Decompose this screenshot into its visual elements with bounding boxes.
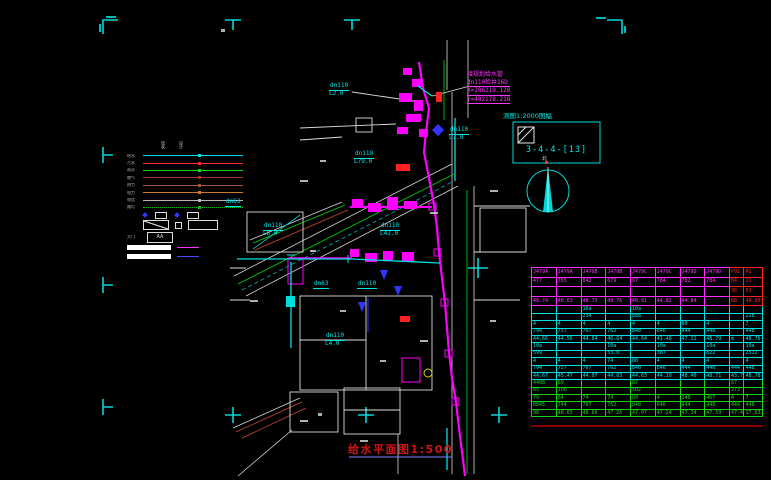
legend-line-sample [143,185,243,186]
pipe-length-text: L42.0 [380,231,400,238]
table-cell: 84 [556,395,581,402]
table-cell: 8845 [532,402,557,409]
table-cell: 444 [680,328,705,335]
table-cell: 273 [730,387,744,394]
table-cell: 7 [744,395,763,402]
legend-line-sample [143,177,243,178]
table-cell [655,387,680,394]
pipe-dim-label: dn110L7.0 [449,127,469,141]
table-cell: 46.64 [606,335,631,342]
pipe-length-text: L7.0 [449,135,469,142]
well-coordinate-callout: 接规划给水管 dn110检井16D X=286219.128 Y=482178.… [467,71,510,104]
table-cell [730,343,744,350]
north-label: 北 [542,155,547,162]
table-cell [556,306,581,313]
pipe-length-text: L4.0 [325,341,345,348]
pipe-dim-label: dn110L42.0 [380,223,400,237]
table-cell: 840 [631,328,656,335]
table-cell: 47.07 [631,409,656,416]
table-cell: 10a [705,343,730,350]
table-cell: 444 [730,402,744,409]
table-cell [532,313,557,320]
gate-row-label: 大门 [127,235,143,239]
table-cell: 98 [532,409,557,416]
table-row: J479AJ479AJ479BJ479BJ479CJ479CJ479DJ479D… [532,268,763,278]
table-cell: 599 [532,350,557,357]
table-row: 44474804444 [532,358,763,365]
pipe-diameter-text: dn110 [357,281,377,289]
table-cell: 10a [631,306,656,313]
table-cell: 4 [744,358,763,365]
table-cell: J479B [581,268,606,278]
magenta-line-sample [177,247,199,248]
table-cell: 44.66 [532,335,557,342]
table-cell: 4488 [532,380,557,387]
table-cell: 48.63 [556,296,581,306]
callout-line: Y=482178.218 [467,96,510,105]
table-cell [556,350,581,357]
table-cell [631,350,656,357]
table-cell: J479D [680,268,705,278]
table-cell: 74 [606,395,631,402]
table-cell [655,287,680,297]
table-cell: 4 [705,358,730,365]
table-cell: 234 [581,313,606,320]
table-cell: 47.24 [655,409,680,416]
legend-row-label: 燃气 [127,176,143,180]
table-cell [581,350,606,357]
table-cell: 140 [680,395,705,402]
table-cell: 48.79 [705,335,730,342]
legend-line-sample [143,155,243,156]
pipe-dim-label: dn110L4.0 [325,333,345,347]
table-cell: 45.47 [556,372,581,379]
pad-symbol [188,220,218,230]
hydrant-block [286,296,295,307]
table-cell: 840 [631,365,656,372]
table-row: 4444448047 [532,321,763,328]
table-cell: 762 [606,328,631,335]
pipe-diameter-text: dn63 [313,281,329,289]
table-cell: 10a [532,343,557,350]
corner-coordinate-noise [99,16,626,33]
north-arrow [527,161,569,212]
table-cell [680,387,705,394]
table-cell: 822 [705,350,730,357]
table-cell: 842 [581,277,606,287]
legend-row: 电力 [127,189,243,196]
table-cell: 757 [556,365,581,372]
legend-row: 雨水 [127,167,243,174]
legend-header-design: 设计 [179,141,183,152]
table-cell: 762 [606,365,631,372]
table-row: 477765842679977847827848421 [532,277,763,287]
table-cell: 48.76 [744,335,763,342]
legend-header-existing: 现状 [161,141,165,152]
callout-line: dn110检井16D [467,79,510,88]
service-pipes-cyan [237,86,455,470]
table-cell [730,358,744,365]
table-cell: 53.0 [606,350,631,357]
table-cell [730,306,744,313]
table-cell: 4 [655,358,680,365]
legend-symbol-row [143,211,243,219]
index-scale-label: 测图1:2000图幅 [503,110,552,120]
table-cell: 87 [631,380,656,387]
table-cell: 48.40 [680,372,705,379]
legend-building-row-2 [127,252,243,261]
table-cell [606,387,631,394]
table-cell: 44.64 [631,335,656,342]
elevation-table-grid: J479AJ479AJ479BJ479BJ479CJ479CJ479DJ479D… [531,267,763,417]
valve-symbol-icon [142,212,148,218]
table-cell: 84 [730,277,744,287]
well-symbol [175,222,182,229]
table-cell [606,287,631,297]
legend-line-tick [198,169,201,172]
legend-row-label: 电信 [127,198,143,202]
pipe-diameter-text: dn63 [225,199,241,207]
table-cell: 44.82 [655,296,680,306]
table-cell: 48.66 [581,409,606,416]
table-cell [680,350,705,357]
table-cell: 448 [705,402,730,409]
table-cell: 467 [705,395,730,402]
table-cell: 80 [631,395,656,402]
legend-line-tick [198,154,201,157]
legend-row: 污水 [127,159,243,166]
table-cell: 43.74 [730,372,744,379]
legend-line-tick [198,199,201,202]
table-cell: 48.78 [744,372,763,379]
table-cell: 846 [655,365,680,372]
pipe-length-text: L79.0 [354,159,374,166]
table-cell: 74 [606,358,631,365]
table-cell [631,343,656,350]
table-cell [680,343,705,350]
cad-viewport: 现状 设计 给水污水雨水燃气热力电力电信路灯 大门 AA dn110L2 [0,0,771,480]
table-cell: 44.10 [655,372,680,379]
table-row: 44.6644.5644.8446.6444.6441.4847.1148.79… [532,335,763,342]
table-cell: P92 [730,268,744,278]
table-cell: 100 [556,387,581,394]
table-cell: 4 [705,321,730,328]
table-cell: 2512 [744,350,763,357]
legend-structure-row [143,219,243,231]
table-cell [705,287,730,297]
table-cell [730,313,744,320]
table-cell: 784 [655,277,680,287]
legend-line-tick [198,191,201,194]
table-cell: 85 [532,387,557,394]
valve-symbol-icon [174,212,180,218]
table-cell: m [730,335,744,342]
table-cell [606,380,631,387]
table-cell: 74 [581,395,606,402]
table-cell: 477 [532,277,557,287]
building-bar-symbol [127,254,171,259]
table-cell: 767 [581,402,606,409]
table-cell: 4 [606,321,631,328]
table-cell [556,287,581,297]
table-cell: 10a [606,343,631,350]
building-bar-symbol [127,245,171,250]
table-cell: 44.84 [680,296,705,306]
legend-line-tick [198,184,201,187]
table-cell [705,296,730,306]
table-cell: 4 [655,395,680,402]
table-row: 8845744767762840846444448444448 [532,402,763,409]
table-cell: 4 [581,321,606,328]
table-cell: 44.67 [532,372,557,379]
table-cell: 47.26 [606,409,631,416]
table-cell: 794 [532,365,557,372]
table-row: 59953.03878222512 [532,350,763,357]
legend-line-sample [143,207,243,208]
table-cell: 87 [730,380,744,387]
table-cell: 7 [744,321,763,328]
pipe-dim-label: dn63 [225,199,241,207]
table-cell: 10a [581,306,606,313]
table-cell [744,387,763,394]
table-cell: 4 [730,395,744,402]
legend-row-label: 路灯 [127,205,143,209]
table-cell [655,313,680,320]
legend-gate-row: 大门 AA [127,231,243,243]
table-cell: 444 [730,365,744,372]
table-cell: P1 [744,268,763,278]
meter-box-symbol [187,212,199,219]
table-cell: 10a [655,343,680,350]
table-cell: 782 [680,277,705,287]
legend-line-sample [143,170,243,171]
legend-line-sample [143,163,243,164]
table-cell: 228 [744,313,763,320]
table-cell: J479B [606,268,631,278]
table-cell: 89 [556,380,581,387]
table-cell: 47.49 [730,409,744,416]
table-cell [705,313,730,320]
meter-box-symbol [155,212,167,219]
table-cell: 17.63 [744,409,763,416]
pipe-length-text: L2.0 [329,91,349,98]
table-row: 48.7448.6348.7348.7648.8144.8244.848848.… [532,296,763,306]
table-cell [532,306,557,313]
table-cell: 4 [556,321,581,328]
drawing-title: 给水平面图1:500 [348,441,453,457]
table-cell: 10a [744,343,763,350]
table-cell: 80 [680,321,705,328]
table-cell [705,380,730,387]
table-cell: 47.59 [705,409,730,416]
table-cell: 48.81 [631,296,656,306]
callout-line: X=286219.128 [467,87,510,96]
table-cell: 846 [655,402,680,409]
table-cell: 448 [744,365,763,372]
blue-line-sample [177,256,199,257]
table-cell [532,287,557,297]
table-cell: J479C [655,268,680,278]
table-cell: 4 [532,321,557,328]
table-cell: 448 [744,402,763,409]
table-cell: 44.07 [581,372,606,379]
table-cell [581,287,606,297]
table-cell: 762 [606,402,631,409]
table-cell: 80 [631,358,656,365]
legend-row-label: 给水 [127,154,143,158]
table-cell [581,380,606,387]
road-edges [233,40,474,476]
pipe-dim-label: dn110L8.0 [263,223,283,237]
table-section-existing-wells: J479AJ479AJ479BJ479BJ479CJ479CJ479DJ479D… [532,268,763,306]
table-cell [730,321,744,328]
table-cell: 88 [730,296,744,306]
table-section-design-run-2: 10a10a10a10a10a59953.0387822251244474804… [532,343,763,380]
table-cell [680,313,705,320]
legend-building-row-1 [127,243,243,252]
table-cell: 97 [631,277,656,287]
table-cell [606,313,631,320]
legend-row: 给水 [127,152,243,159]
table-cell [581,343,606,350]
table-cell: 51 [744,287,763,297]
table-cell: J479C [631,268,656,278]
table-cell: 846 [655,328,680,335]
table-cell: 36 [730,287,744,297]
table-row: 9848.6548.6647.2647.0747.2447.3447.5947.… [532,409,763,416]
table-cell: J479D [705,268,730,278]
table-cell: 679 [606,277,631,287]
table-cell: 44.63 [606,372,631,379]
table-row: 4488898787 [532,380,763,387]
table-cell: 21 [744,277,763,287]
elevation-table: J479AJ479AJ479BJ479BJ479CJ479CJ479DJ479D… [531,267,763,417]
water-main-pipeline [288,62,465,476]
table-cell [680,380,705,387]
table-cell [655,306,680,313]
table-cell: 387 [655,350,680,357]
legend-row: 热力 [127,182,243,189]
table-cell: 765 [556,277,581,287]
table-cell: 48.74 [532,296,557,306]
table-cell [680,287,705,297]
table-cell: J479A [556,268,581,278]
table-section-design-run-1: 10a10a2348882284444448047794757767762840… [532,306,763,343]
table-row: 44.6745.4744.0744.6344.6344.1048.4048.71… [532,372,763,379]
table-row: 794757767762840846444448448 [532,328,763,335]
table-cell: 79 [532,395,557,402]
table-cell [655,380,680,387]
table-cell: 48.73 [581,296,606,306]
table-row: 10a10a10a10a10a [532,343,763,350]
table-cell: 47.34 [680,409,705,416]
table-cell: 4 [581,358,606,365]
table-cell: 448 [705,328,730,335]
table-cell: 48.76 [606,296,631,306]
table-cell: 794 [532,328,557,335]
callout-line: 接规划给水管 [467,71,510,79]
table-cell [680,306,705,313]
legend-line-sample [143,192,243,193]
pipe-dim-label: dn110 [357,281,377,289]
table-row: 7984747480414046747 [532,395,763,402]
legend-line-tick [198,206,201,209]
legend-row-label: 污水 [127,161,143,165]
sheet-number-label: 3-4-4-[13] [513,145,600,155]
table-row: 794757767762840846444448444448 [532,365,763,372]
table-cell: 840 [631,402,656,409]
table-cell: 44.56 [556,335,581,342]
table-cell: 4 [680,358,705,365]
table-cell: 48.60 [744,296,763,306]
table-section-road-levels: 4488898787851005022737984747480414046747… [532,380,763,417]
legend-row: 燃气 [127,174,243,181]
table-cell: 448 [744,328,763,335]
table-cell: 44.63 [631,372,656,379]
table-cell: 767 [581,328,606,335]
table-cell: 41.48 [655,335,680,342]
table-cell: 767 [581,365,606,372]
survey-point [424,369,432,377]
table-row: 234888228 [532,313,763,320]
table-cell [744,380,763,387]
table-cell: 48.71 [705,372,730,379]
table-cell: 888 [631,313,656,320]
table-cell: 444 [680,402,705,409]
legend-line-tick [198,176,201,179]
table-cell: 4 [655,321,680,328]
legend-row-label: 电力 [127,191,143,195]
table-cell [744,306,763,313]
table-cell [581,387,606,394]
table-cell: 44.84 [581,335,606,342]
table-cell: 784 [705,277,730,287]
table-cell [556,343,581,350]
table-cell [606,306,631,313]
table-row: 3651 [532,287,763,297]
table-cell: 4 [556,358,581,365]
table-cell: 757 [556,328,581,335]
table-cell [556,313,581,320]
pipe-dim-label: dn63 [313,281,329,289]
table-cell: 444 [680,365,705,372]
table-cell: 48.65 [556,409,581,416]
table-cell: 4 [532,358,557,365]
sheet-index-box [513,122,600,163]
culvert-symbol [143,220,169,230]
table-cell [631,287,656,297]
table-cell [705,306,730,313]
table-row: 10a10a [532,306,763,313]
legend-row-label: 热力 [127,183,143,187]
table-cell: 502 [631,387,656,394]
table-cell: J479A [532,268,557,278]
pipe-length-text: L8.0 [263,231,283,238]
table-cell: 4 [631,321,656,328]
pipe-dim-label: dn110L79.0 [354,151,374,165]
table-cell: 47.11 [680,335,705,342]
legend-header: 现状 设计 [161,141,243,152]
gate-symbol-box: AA [147,232,173,243]
table-cell [730,328,744,335]
legend-line-tick [198,162,201,165]
table-cell: 744 [556,402,581,409]
table-cell [705,387,730,394]
road-green-lines [238,60,467,474]
table-cell [730,350,744,357]
legend-row-label: 雨水 [127,168,143,172]
table-cell: 448 [705,365,730,372]
